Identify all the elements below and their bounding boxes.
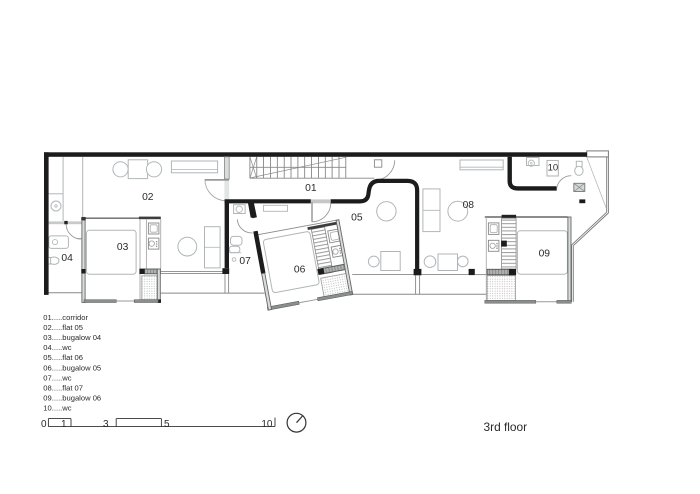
svg-text:04.....wc: 04.....wc xyxy=(43,343,71,352)
svg-text:0: 0 xyxy=(41,419,47,430)
svg-text:05.....flat 06: 05.....flat 06 xyxy=(43,353,83,362)
svg-text:5: 5 xyxy=(164,419,170,430)
svg-text:09.....bugalow 06: 09.....bugalow 06 xyxy=(43,394,101,403)
svg-text:04: 04 xyxy=(61,253,73,264)
svg-text:03.....bugalow 04: 03.....bugalow 04 xyxy=(43,333,101,342)
svg-text:08: 08 xyxy=(463,200,475,211)
svg-text:1: 1 xyxy=(61,419,67,430)
svg-text:08.....flat 07: 08.....flat 07 xyxy=(43,384,83,393)
svg-text:06.....bugalow 05: 06.....bugalow 05 xyxy=(43,363,101,372)
svg-text:10: 10 xyxy=(261,419,273,430)
svg-text:03: 03 xyxy=(117,242,129,253)
svg-text:3rd floor: 3rd floor xyxy=(484,420,528,434)
svg-text:10.....wc: 10.....wc xyxy=(43,404,71,413)
svg-text:06: 06 xyxy=(294,264,306,275)
svg-text:01: 01 xyxy=(305,183,317,194)
svg-text:09: 09 xyxy=(539,249,551,260)
svg-text:02.....flat 05: 02.....flat 05 xyxy=(43,323,83,332)
svg-text:02: 02 xyxy=(142,192,154,203)
svg-text:05: 05 xyxy=(351,213,363,224)
svg-text:01.....corridor: 01.....corridor xyxy=(43,313,88,322)
svg-text:07.....wc: 07.....wc xyxy=(43,373,71,382)
svg-text:07: 07 xyxy=(239,256,251,267)
svg-text:3: 3 xyxy=(103,419,109,430)
svg-text:10: 10 xyxy=(548,163,559,174)
